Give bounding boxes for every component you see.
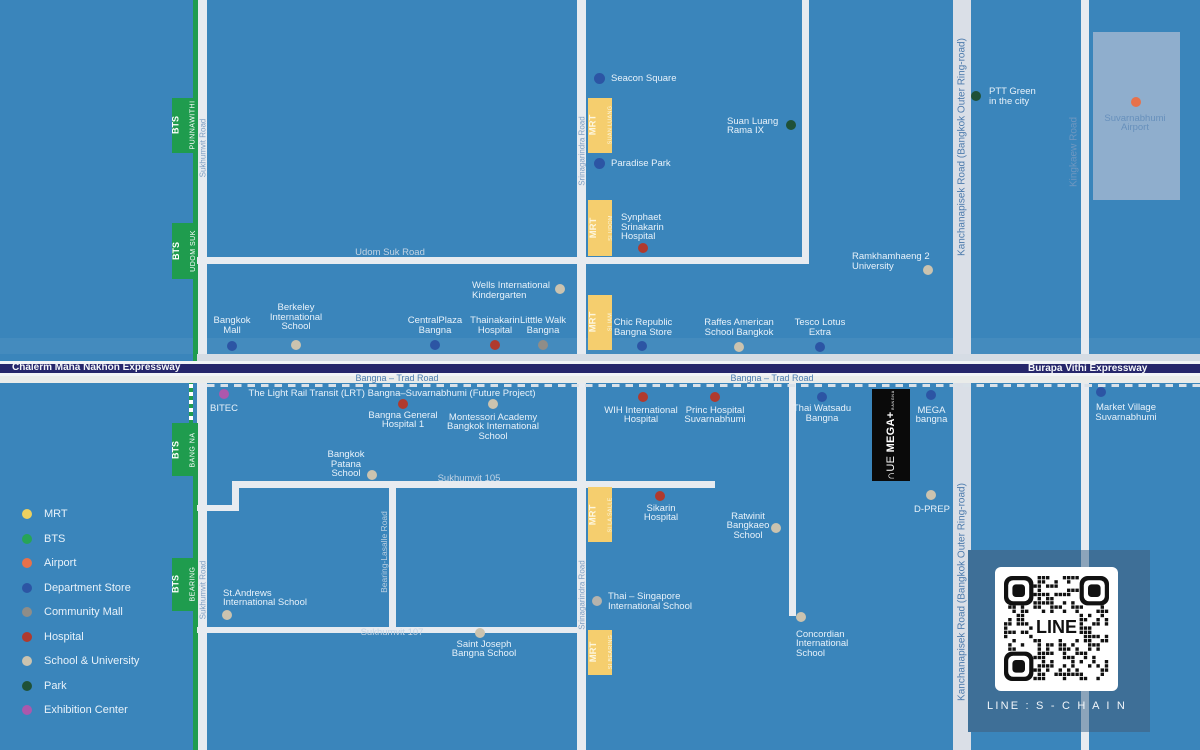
svg-text:LINE: LINE <box>1036 617 1077 637</box>
